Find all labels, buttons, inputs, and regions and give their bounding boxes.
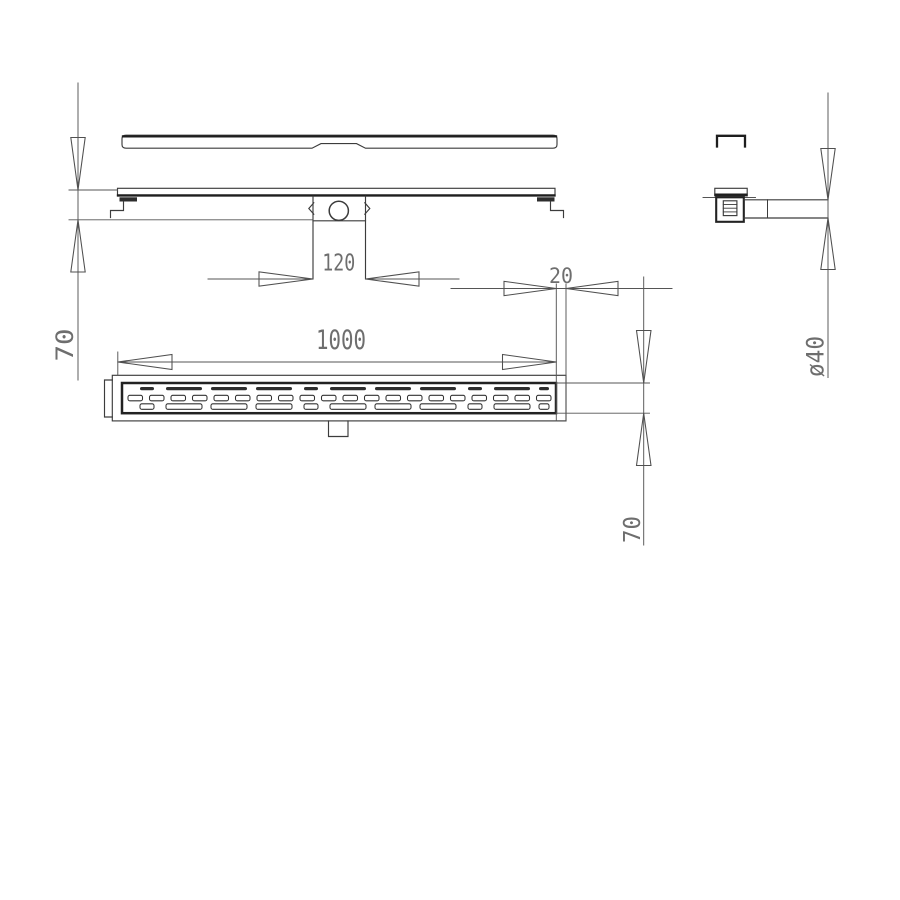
- grate-slot: [375, 387, 411, 390]
- grate-slot: [494, 404, 530, 410]
- dim-label-20: 20: [549, 264, 573, 288]
- grate-slot: [472, 395, 487, 401]
- dimension-70-left: 70: [51, 83, 313, 380]
- grate-slot: [451, 395, 466, 401]
- grate-slot: [420, 387, 456, 390]
- dim-label-dia40: ø40: [802, 336, 830, 377]
- grate-slot: [343, 395, 358, 401]
- drawing-canvas: 120 20 1000 70 70 ø4: [0, 0, 900, 900]
- grate-slot: [171, 395, 186, 401]
- grate-slot: [429, 395, 444, 401]
- dim-label-120: 120: [322, 251, 355, 277]
- cover-strip-side-view: [122, 135, 557, 148]
- grate-slot: [140, 404, 154, 410]
- grate-slot: [256, 387, 292, 390]
- outlet-circle: [329, 201, 348, 220]
- dim-label-70-right: 70: [620, 516, 646, 543]
- grate-slot: [537, 395, 552, 401]
- grate-slot: [322, 395, 337, 401]
- grate-slot: [539, 387, 549, 390]
- grate-slot: [408, 395, 423, 401]
- grate-slot: [330, 387, 366, 390]
- grate-slot: [128, 395, 143, 401]
- left-mount-hook: [111, 202, 124, 218]
- grate-slot: [420, 404, 456, 410]
- dim-label-1000: 1000: [316, 325, 366, 356]
- right-mount-hook: [551, 202, 564, 218]
- grate-bottom-outlet-tab: [329, 421, 349, 437]
- grate-slot: [214, 395, 229, 401]
- grate-slot: [386, 395, 401, 401]
- dimension-120: 120: [208, 251, 459, 287]
- grate-slot: [494, 395, 509, 401]
- grate-slot: [468, 404, 482, 410]
- left-mount-clip: [120, 197, 138, 201]
- technical-drawing: 120 20 1000 70 70 ø4: [0, 0, 900, 900]
- grate-slot: [236, 395, 251, 401]
- right-mount-clip: [537, 197, 555, 201]
- grate-slot: [211, 404, 247, 410]
- grate-slot: [304, 387, 318, 390]
- grate-slot: [166, 387, 202, 390]
- cover-strip-end-profile: [717, 136, 745, 147]
- grate-slot: [279, 395, 294, 401]
- dimension-70-right: 70: [557, 277, 651, 545]
- end-view: [703, 136, 828, 222]
- grate-slot: [468, 387, 482, 390]
- dim-label-70-left: 70: [51, 329, 79, 362]
- grate-slot: [365, 395, 380, 401]
- grate-slot: [515, 395, 530, 401]
- dimension-1000: 1000: [118, 325, 557, 375]
- grate-slot: [330, 404, 366, 410]
- grate-slot: [166, 404, 202, 410]
- grate-slot: [304, 404, 318, 410]
- grate-slot: [211, 387, 247, 390]
- grate-slot: [150, 395, 165, 401]
- grate-slot: [539, 404, 549, 410]
- dimension-dia-40: ø40: [802, 93, 836, 378]
- grate-slot: [256, 404, 292, 410]
- grate-left-tab: [105, 380, 113, 417]
- grate-slot: [300, 395, 315, 401]
- grate-top-view: [105, 375, 567, 436]
- grate-slot: [193, 395, 208, 401]
- grate-slot: [494, 387, 530, 390]
- grate-slot: [257, 395, 272, 401]
- grate-slot: [375, 404, 411, 410]
- grate-slot: [140, 387, 154, 390]
